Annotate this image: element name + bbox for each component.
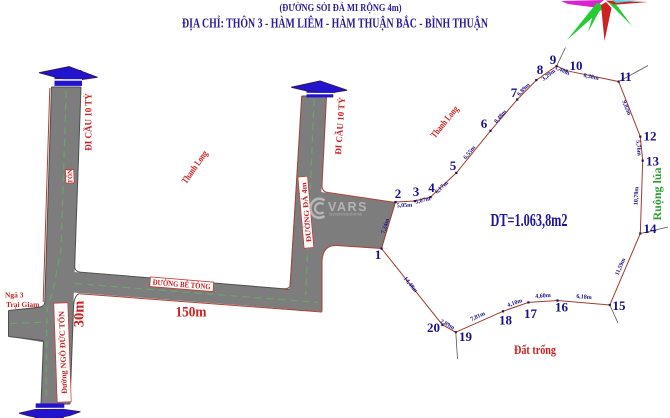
svg-text:DT=1.063,8m2: DT=1.063,8m2 [491,210,568,230]
svg-text:5,05m: 5,05m [397,203,413,210]
svg-text:17: 17 [524,306,538,321]
svg-text:HỘI MÔI GIỚI BẤT ĐỘNG SẢN VIỆT: HỘI MÔI GIỚI BẤT ĐỘNG SẢN VIỆT NAM [329,212,362,217]
svg-text:13: 13 [646,154,660,169]
svg-text:4,60m: 4,60m [535,293,551,300]
svg-text:8: 8 [537,62,544,77]
svg-text:20: 20 [427,320,440,335]
svg-text:18: 18 [499,313,513,328]
svg-text:5: 5 [450,158,457,173]
svg-text:TỐN: TỐN [66,169,74,184]
svg-text:15: 15 [613,298,627,313]
svg-text:14: 14 [644,221,658,236]
svg-text:2: 2 [395,186,402,201]
svg-text:ĐI CẦU 10 TỶ: ĐI CẦU 10 TỶ [84,93,94,151]
svg-text:Trại Giam: Trại Giam [6,300,40,309]
svg-text:(ĐƯỜNG SỎI ĐÁ MI RỘNG 4m): (ĐƯỜNG SỎI ĐÁ MI RỘNG 4m) [280,1,402,14]
svg-text:150m: 150m [176,305,207,321]
svg-text:Ruộng lúa: Ruộng lúa [650,167,664,220]
svg-text:11: 11 [619,69,631,84]
svg-text:ĐỊA CHỈ: THÔN 3 - HÀM LIÊM - H: ĐỊA CHỈ: THÔN 3 - HÀM LIÊM - HÀM THUẬN B… [182,16,488,31]
svg-text:12: 12 [644,129,657,144]
svg-text:4: 4 [428,180,435,195]
svg-text:3: 3 [413,184,420,199]
svg-text:10,78m: 10,78m [634,187,641,206]
svg-text:6: 6 [481,116,488,131]
svg-text:10: 10 [570,58,583,73]
svg-text:19: 19 [459,329,473,344]
svg-text:16: 16 [555,300,569,315]
svg-text:Đất trống: Đất trống [514,342,556,357]
svg-text:Ngã 3: Ngã 3 [5,291,24,300]
svg-text:30m: 30m [72,301,88,328]
svg-text:1: 1 [375,247,382,262]
